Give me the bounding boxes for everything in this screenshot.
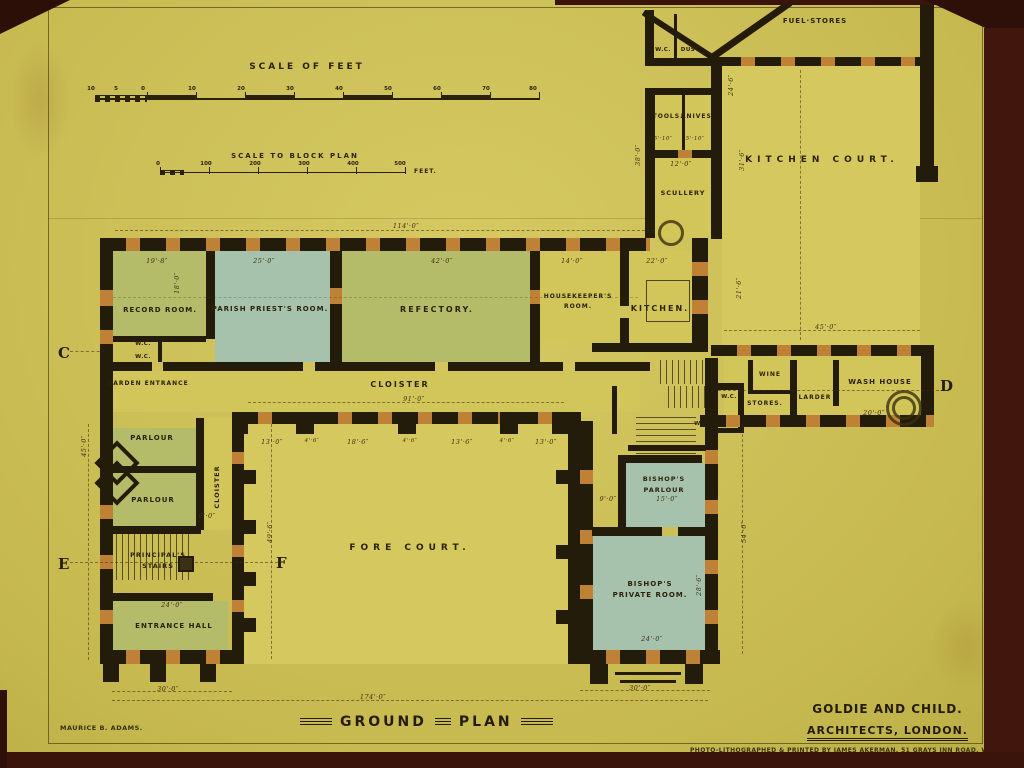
room-label-parlour-1: PARLOUR [130,434,174,442]
dim-label: 5'·10″ [686,136,705,142]
section-marker-d: D [940,377,953,395]
wall [645,10,654,62]
dim-label: 9'·0″ [599,495,616,503]
architect-city-text: ARCHITECTS, LONDON. [807,724,968,741]
title-rule [300,718,332,726]
dim-line [88,424,89,660]
buttress-pier [244,520,256,534]
window [705,610,718,624]
dim-label: 174'·0″ [360,693,386,701]
window [580,470,593,484]
section-line-d [718,390,944,391]
windowed-wall [652,150,711,158]
wall [628,445,706,451]
title-word: PLAN [459,714,513,730]
room-label-stores: STORES. [747,400,783,407]
dim-label: 13'·0″ [261,438,283,446]
pier [685,664,703,684]
buttress-pier [244,618,256,632]
wall-partition [833,360,839,406]
scale-tick: 10 [87,86,95,92]
section-marker-c: C [58,344,70,362]
stair-treads [668,386,708,408]
wall [920,0,934,170]
buttress-pier [556,470,568,484]
step-line [620,680,676,683]
dim-label: 31'·6″ [738,149,746,171]
dim-label: 18'·0″ [173,272,181,294]
wall [711,57,722,239]
windowed-wall-north [100,238,650,251]
photo-backing-corner [0,690,7,768]
lithograph-ground-plan: SCALE OF FEET 10 5 0 10 20 30 40 50 60 7… [0,0,1024,768]
room-label-fore-court: FORE COURT. [349,543,470,553]
block-scale-subdivisions [160,170,184,175]
room-label-entrance-hall: ENTRANCE HALL [135,622,213,630]
dim-label: 19'·8″ [146,257,168,265]
room-label-record-room: RECORD ROOM. [123,306,197,314]
room-label-knives: KNIVES. [681,113,715,120]
dim-label: 21'·6″ [735,277,743,299]
dim-label: 30'·0″ [629,684,651,692]
scale-tick: 0 [141,86,145,92]
wall [674,14,677,58]
step-line [615,672,681,675]
wall [612,386,617,434]
buttress-pier [500,412,518,434]
dim-label: 24'·6″ [727,74,735,96]
pier [200,664,216,682]
section-line-c [70,351,105,352]
dim-label: 12'·0″ [670,160,692,168]
dim-label: 54'·0″ [740,521,748,543]
window [100,505,113,519]
room-label-cloister-v: CLOISTER [213,465,221,508]
pier [103,664,119,682]
dim-label: 91'·0″ [403,395,425,403]
room-label-bishops-private: BISHOP'S [627,580,672,588]
room-label-housekeepers: HOUSEKEEPER'S [544,293,613,300]
dim-label: 4'·6″ [403,438,418,444]
room-label-wc: W.C. [135,341,151,347]
door-jamb [330,288,342,304]
windowed-wall [715,57,922,66]
title-rule [521,718,553,726]
wall [448,362,563,371]
wall-partition [530,251,540,363]
photo-backing-edge [984,28,1024,768]
dim-label: 24'·0″ [641,635,663,643]
wall [678,527,708,536]
window [705,500,718,514]
dim-label: 9'·0″ [198,512,215,520]
wall [158,336,162,362]
wall [618,455,702,463]
room-label-parlour-2: PARLOUR [131,496,175,504]
scale-bar-subdivisions [95,95,147,102]
room-label-principals-stairs-2: STAIRS [142,562,174,570]
dim-label: 15'·0″ [656,495,678,503]
window [100,610,113,624]
wall-wc-annex [705,428,743,433]
wall-partition [113,466,198,473]
wall [618,455,626,533]
kitchen-court-fill [722,66,920,345]
window [100,330,113,344]
cloister-fill [113,371,640,412]
dim-label: 45'·0″ [80,435,88,457]
windowed-wall-south [100,650,235,664]
room-label-wc: W.C. [721,394,737,400]
scale-bar-segments [147,95,539,99]
buttress-pier [556,545,568,559]
room-label-bishops-parlour-2: PARLOUR [644,486,685,494]
buttress-pier [556,610,568,624]
room-label-cloister: CLOISTER [370,380,429,389]
architect-city: ARCHITECTS, LONDON. [790,719,985,738]
windowed-wall-south [580,650,720,664]
block-scale-line [160,172,406,173]
architect-name: GOLDIE AND CHILD. [790,702,985,716]
room-label-kitchen: KITCHEN. [631,304,689,313]
room-label-refectory: REFECTORY. [400,305,474,314]
dim-label: 13'·0″ [535,438,557,446]
dim-line [115,230,655,231]
room-label-parish-priests-room: PARISH PRIEST'S ROOM. [212,305,329,313]
photo-backing-edge [555,0,945,5]
scale-of-feet-title: SCALE OF FEET [249,62,365,72]
room-label-wine: WINE [759,371,781,378]
dim-label: 20'·0″ [863,409,885,417]
room-label-dust: DUST. [681,47,702,53]
wall [113,593,213,601]
wall-partition [330,251,342,363]
dim-label: 24'·0″ [161,601,183,609]
dim-label: 28'·6″ [695,574,703,596]
section-line-ef [70,562,278,563]
dim-label: 42'·0″ [431,257,453,265]
window [232,600,244,612]
section-marker-f: F [276,554,287,572]
windowed-wall [711,345,921,356]
wall [163,362,303,371]
wall [100,362,152,371]
room-label-wash-house: WASH HOUSE [848,378,911,386]
room-label-bishops-private-2: PRIVATE ROOM. [613,591,688,599]
dim-label: 114'·0″ [393,222,419,230]
dim-label: 38'·0″ [634,144,642,166]
room-label-larder: LARDER [799,394,832,401]
wall [682,88,685,152]
scale-tick: 5 [114,86,118,92]
block-scale-title: SCALE TO BLOCK PLAN [231,152,359,160]
room-label-fuel-stores: FUEL·STORES [783,17,847,25]
section-marker-e: E [58,555,69,573]
room-label-garden-entrance: GARDEN ENTRANCE [107,380,188,387]
dim-label: 22'·0″ [646,257,668,265]
feet-unit-label: FEET. [414,168,437,175]
wall-pier [916,166,938,182]
wall [645,88,711,95]
window [232,545,244,557]
buttress-pier [244,572,256,586]
wall [315,362,435,371]
dim-label: 18'·6″ [347,438,369,446]
ground-plan-title: GROUND PLAN [300,714,553,730]
window [705,560,718,574]
wall [592,343,708,352]
well-circle-inner [892,396,916,420]
dim-label: 30'·0″ [157,685,179,693]
center-line [800,70,801,340]
wall [113,526,201,534]
window [692,262,708,276]
room-label-principals-stairs: PRINCIPAL'S [130,551,186,559]
buttress-pier [398,412,416,434]
copper-circle [658,220,684,246]
buttress-pier [296,412,314,434]
room-label-bishops-parlour: BISHOP'S [643,475,685,483]
room-label-wc: W.C. [655,47,671,53]
buttress-pier [244,470,256,484]
title-word: GROUND [340,714,427,730]
wall-partition [206,251,215,339]
window [705,450,718,464]
room-label-wc: W.C. [694,421,710,427]
dim-label: 49'·6″ [266,521,274,543]
title-rule [435,718,451,726]
wall [575,362,650,371]
dim-label: 4'·6″ [500,438,515,444]
wall [645,88,655,238]
photo-backing-edge [0,752,1024,768]
window [692,300,708,314]
window [580,585,593,599]
dim-label: 25'·0″ [253,257,275,265]
wall-partition [620,318,629,344]
dim-label: 14'·0″ [561,257,583,265]
room-label-wc: W.C. [135,354,151,360]
window [232,452,244,464]
dim-line [112,700,708,701]
buttress-pier [552,412,568,434]
delineator-credit: MAURICE B. ADAMS. [60,724,143,732]
wall [592,527,662,536]
wall-partition [748,360,753,392]
window [100,290,113,306]
dim-label: 5'·10″ [654,136,673,142]
dim-label: 13'·6″ [451,438,473,446]
dim-label: 4'·6″ [305,438,320,444]
room-label-tools: TOOLS. [653,113,684,120]
pier [590,664,608,684]
room-label-scullery: SCULLERY [661,189,706,197]
kitchen-range-outline [646,280,690,322]
stair-treads [660,360,708,384]
room-label-housekeepers-2: ROOM. [564,303,592,310]
wall [692,238,708,344]
pier [150,664,166,682]
dim-label: 45'·0″ [815,323,837,331]
wall [645,58,715,66]
room-label-kitchen-court: KITCHEN COURT. [745,155,899,165]
